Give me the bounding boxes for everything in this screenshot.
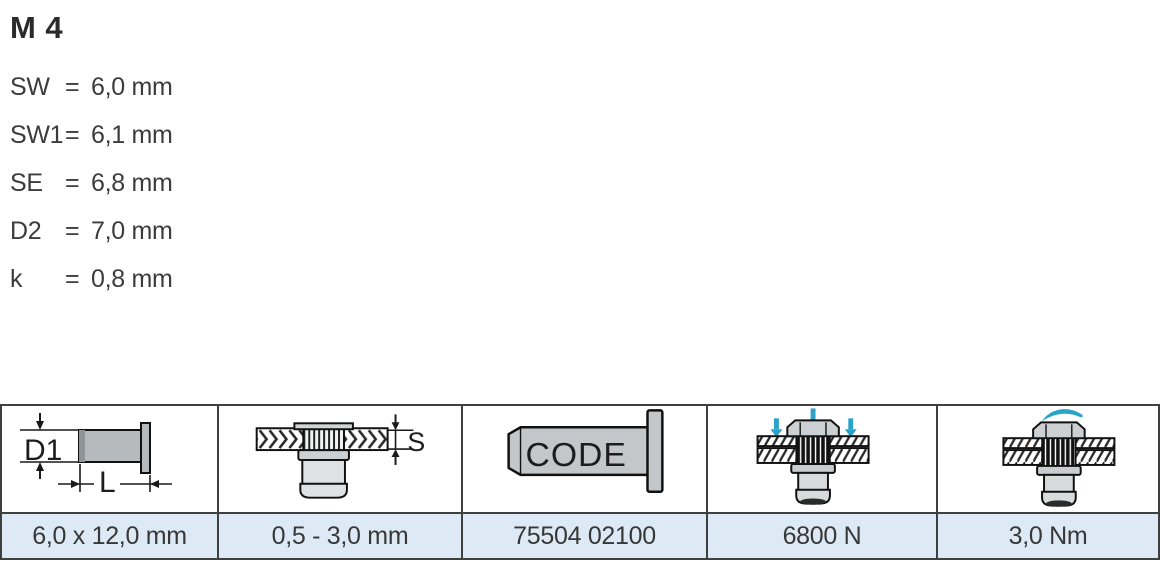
grip-s-label: S xyxy=(407,427,425,457)
spec-label: SW xyxy=(10,73,65,102)
value-part-code: 75504 02100 xyxy=(461,512,706,558)
d1-label: D1 xyxy=(24,434,62,467)
grip-range-diagram-icon: S xyxy=(217,406,461,512)
torque-diagram-icon xyxy=(936,406,1158,512)
length-label: L xyxy=(99,466,116,499)
spec-value: 7,0 mm xyxy=(91,217,173,246)
spec-value: 6,1 mm xyxy=(91,121,173,150)
value-torque: 3,0 Nm xyxy=(936,512,1158,558)
part-code-diagram-icon: CODE xyxy=(461,406,706,512)
spec-label: D2 xyxy=(10,217,65,246)
spec-label: SW1 xyxy=(10,121,65,150)
code-label: CODE xyxy=(525,436,626,474)
spec-equals: = xyxy=(65,73,91,102)
spec-table: D1 L xyxy=(0,404,1160,560)
page-title: M 4 xyxy=(10,10,63,46)
spec-label: k xyxy=(10,265,65,294)
value-size: 6,0 x 12,0 mm xyxy=(2,512,217,558)
diameter-length-diagram-icon: D1 L xyxy=(2,406,217,512)
spec-label: SE xyxy=(10,169,65,198)
spec-list: SW = 6,0 mm SW1 = 6,1 mm SE = 6,8 mm D2 … xyxy=(10,73,173,294)
value-grip-range: 0,5 - 3,0 mm xyxy=(217,512,461,558)
value-axial-force: 6800 N xyxy=(706,512,936,558)
spec-equals: = xyxy=(65,121,91,150)
spec-equals: = xyxy=(65,169,91,198)
axial-force-diagram-icon xyxy=(706,406,936,512)
spec-equals: = xyxy=(65,217,91,246)
spec-value: 0,8 mm xyxy=(91,265,173,294)
spec-value: 6,0 mm xyxy=(91,73,173,102)
datasheet-page: M 4 SW = 6,0 mm SW1 = 6,1 mm SE = 6,8 mm… xyxy=(0,0,1160,565)
spec-value: 6,8 mm xyxy=(91,169,173,198)
spec-equals: = xyxy=(65,265,91,294)
